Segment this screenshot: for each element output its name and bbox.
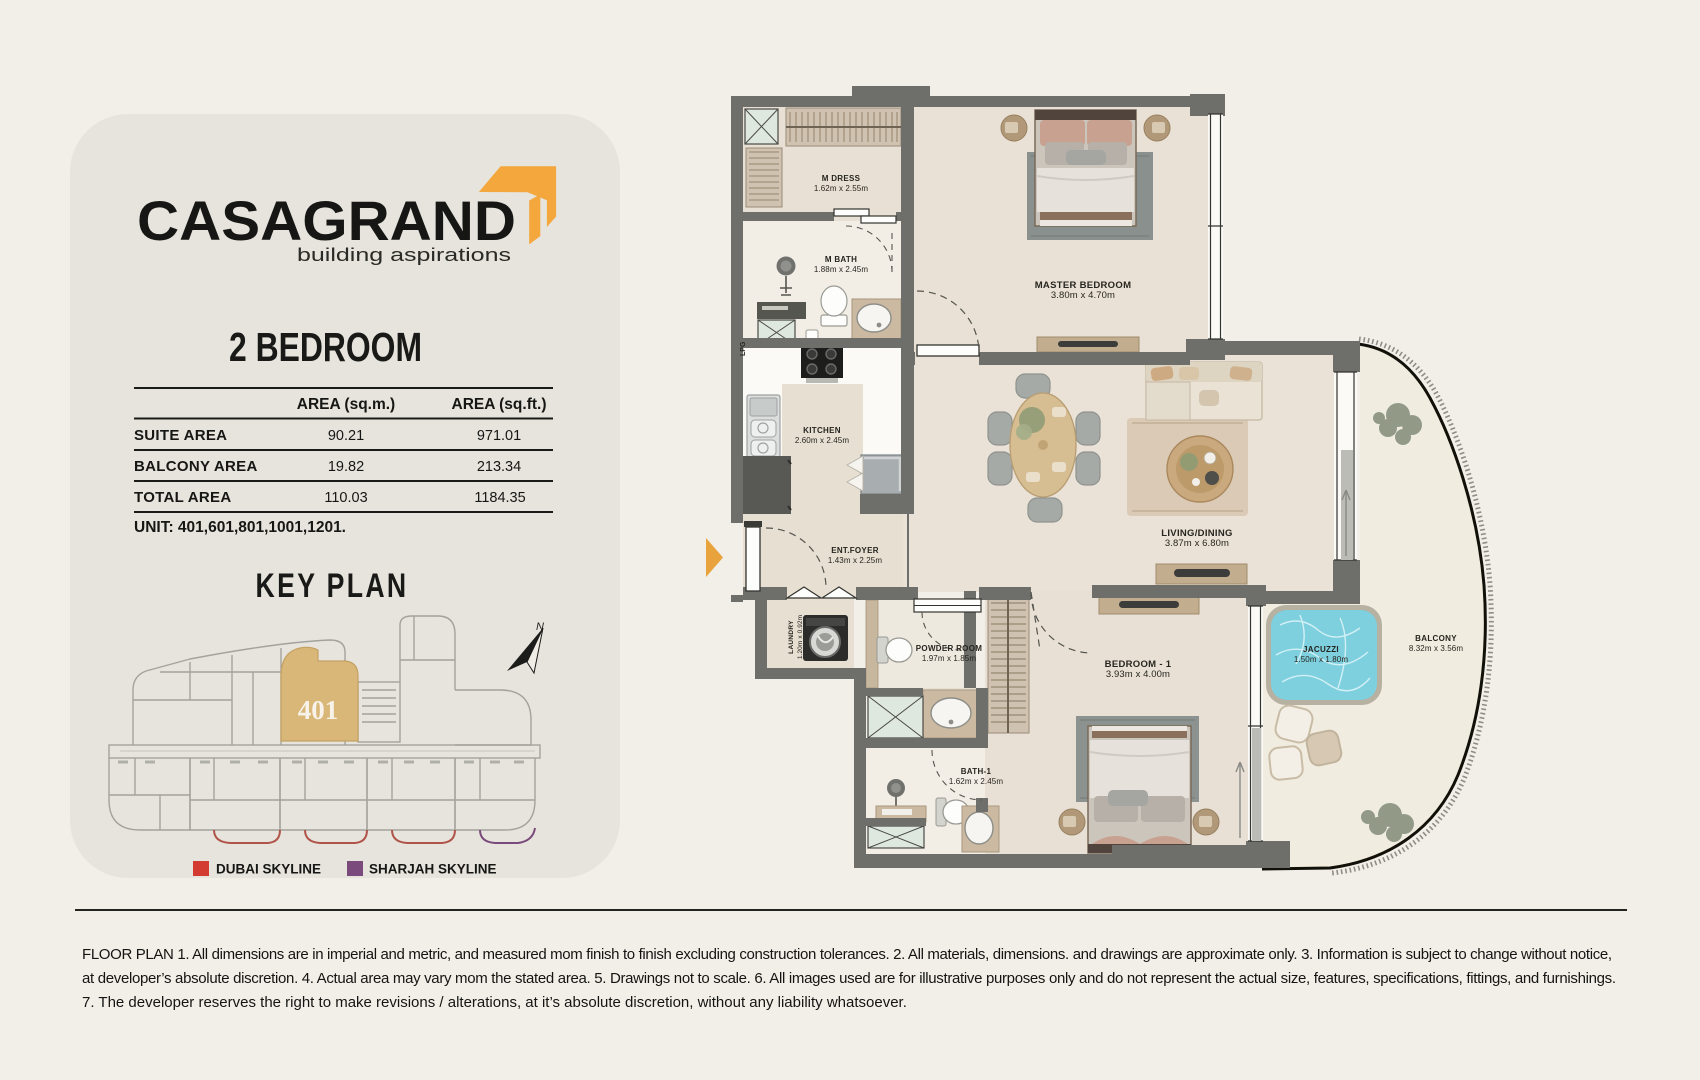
svg-text:FLOOR PLAN 1. All dimensions a: FLOOR PLAN 1. All dimensions are in impe…: [82, 946, 1612, 963]
svg-text:1184.35: 1184.35: [474, 490, 525, 506]
svg-text:110.03: 110.03: [324, 490, 367, 506]
svg-text:19.82: 19.82: [328, 459, 364, 475]
svg-text:LAUNDRY: LAUNDRY: [788, 620, 795, 654]
svg-text:1.88m x 2.45m: 1.88m x 2.45m: [814, 265, 868, 274]
svg-text:BALCONY: BALCONY: [1415, 634, 1457, 643]
svg-text:971.01: 971.01: [477, 428, 521, 444]
svg-text:UNIT: 401,601,801,1001,1201.: UNIT: 401,601,801,1001,1201.: [134, 519, 346, 536]
svg-text:LPG: LPG: [740, 341, 747, 356]
svg-text:3.93m x 4.00m: 3.93m x 4.00m: [1106, 669, 1170, 680]
svg-text:401: 401: [298, 695, 339, 725]
svg-text:BALCONY AREA: BALCONY AREA: [134, 458, 258, 475]
svg-text:3.87m x 6.80m: 3.87m x 6.80m: [1165, 538, 1229, 549]
svg-text:KITCHEN: KITCHEN: [803, 426, 841, 435]
svg-text:1.20m x 0.92m: 1.20m x 0.92m: [797, 615, 804, 659]
svg-text:2 BEDROOM: 2 BEDROOM: [229, 324, 422, 370]
svg-text:7. The developer reserves the: 7. The developer reserves the right to m…: [82, 994, 907, 1011]
svg-text:DUBAI SKYLINE: DUBAI SKYLINE: [216, 862, 321, 877]
svg-text:SUITE AREA: SUITE AREA: [134, 427, 227, 444]
svg-text:SHARJAH SKYLINE: SHARJAH SKYLINE: [369, 862, 497, 877]
svg-text:2.60m x 2.45m: 2.60m x 2.45m: [795, 436, 849, 445]
svg-text:3.80m x 4.70m: 3.80m x 4.70m: [1051, 290, 1115, 301]
svg-text:M DRESS: M DRESS: [822, 174, 861, 183]
svg-text:M BATH: M BATH: [825, 255, 857, 264]
svg-text:JACUZZI: JACUZZI: [1303, 645, 1339, 654]
svg-text:KEY PLAN: KEY PLAN: [256, 567, 409, 605]
svg-text:213.34: 213.34: [477, 459, 521, 475]
svg-text:POWDER ROOM: POWDER ROOM: [916, 644, 982, 653]
svg-text:1.43m x 2.25m: 1.43m x 2.25m: [828, 556, 882, 565]
svg-text:8.32m x 3.56m: 8.32m x 3.56m: [1409, 644, 1463, 653]
svg-text:TOTAL AREA: TOTAL AREA: [134, 489, 231, 506]
svg-text:1.62m x 2.45m: 1.62m x 2.45m: [949, 777, 1003, 786]
svg-text:building aspirations: building aspirations: [297, 245, 511, 265]
svg-text:AREA (sq.ft.): AREA (sq.ft.): [452, 396, 547, 413]
svg-text:N: N: [536, 621, 544, 633]
svg-text:at developer’s absolute discre: at developer’s absolute discretion. 4. A…: [82, 970, 1616, 987]
svg-text:BATH-1: BATH-1: [961, 767, 992, 776]
svg-text:1.62m x 2.55m: 1.62m x 2.55m: [814, 184, 868, 193]
svg-text:AREA (sq.m.): AREA (sq.m.): [297, 396, 395, 413]
svg-text:ENT.FOYER: ENT.FOYER: [831, 546, 879, 555]
svg-text:90.21: 90.21: [328, 428, 364, 444]
svg-text:1.50m x 1.80m: 1.50m x 1.80m: [1294, 655, 1348, 664]
svg-text:1.97m x 1.85m: 1.97m x 1.85m: [922, 654, 976, 663]
svg-text:CASAGRAND: CASAGRAND: [137, 189, 516, 252]
